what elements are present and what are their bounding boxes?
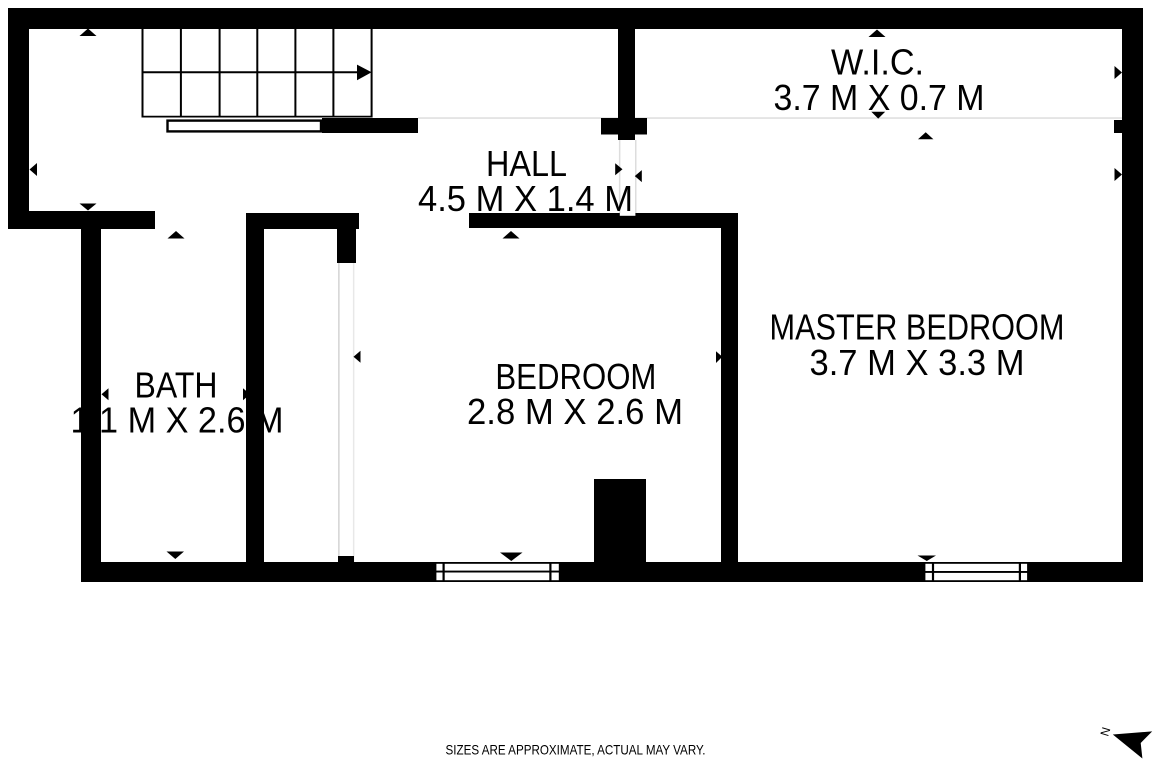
svg-text:3.7 M X 3.3 M: 3.7 M X 3.3 M (810, 342, 1025, 383)
svg-text:2.8 M X 2.6 M: 2.8 M X 2.6 M (467, 391, 683, 432)
svg-text:SIZES ARE APPROXIMATE, ACTUAL: SIZES ARE APPROXIMATE, ACTUAL MAY VARY. (446, 743, 706, 758)
svg-text:4.5 M X 1.4 M: 4.5 M X 1.4 M (418, 178, 633, 219)
svg-text:3.7 M X 0.7 M: 3.7 M X 0.7 M (774, 77, 985, 118)
